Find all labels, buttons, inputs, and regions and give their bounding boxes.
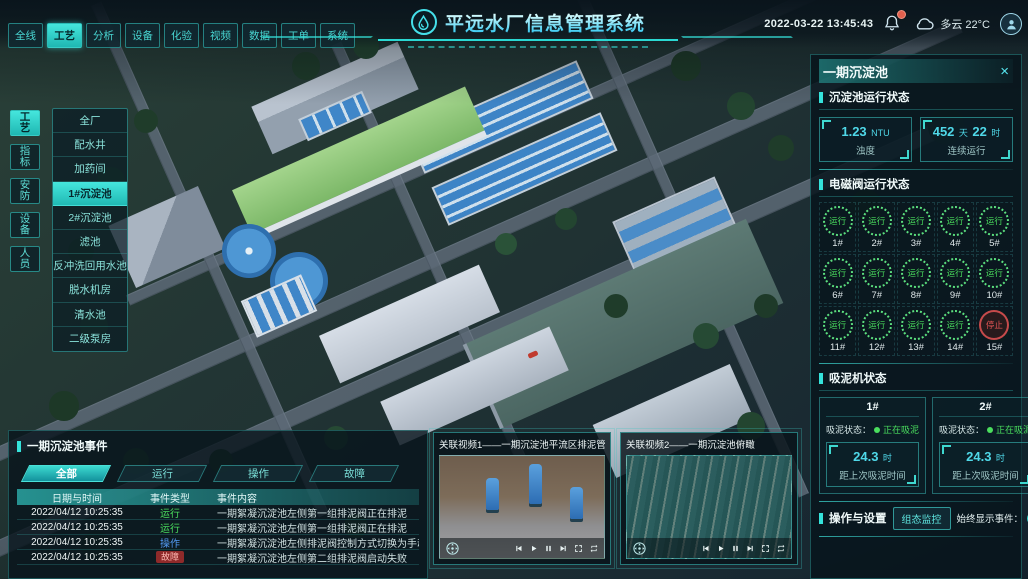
scraper-status-row: 吸泥状态： 正在吸泥 (826, 423, 919, 436)
prev-icon[interactable] (701, 544, 710, 553)
uptime-days-unit: 天 (959, 128, 968, 138)
events-panel-title: 一期沉淀池事件 (17, 436, 419, 456)
valve-status: 运行 4# (937, 202, 974, 252)
valve-status-label: 运行 (829, 319, 846, 331)
valve-status-label: 运行 (868, 267, 885, 279)
loop-icon[interactable] (589, 544, 599, 553)
valve-status: 运行 9# (937, 254, 974, 304)
always-show-events-toggle-wrap: 始终显示事件： (957, 511, 1028, 525)
valve-indicator-icon: 运行 (940, 258, 970, 288)
scraper-status-row: 吸泥状态： 正在吸泥 (939, 423, 1028, 436)
status-dot-icon (987, 427, 993, 433)
event-content: 一期絮凝沉淀池左侧第二组排泥阀启动失败 (203, 550, 419, 565)
valve-id: 9# (950, 290, 961, 301)
valve-indicator-icon: 运行 (862, 206, 892, 236)
uptime-label: 连续运行 (923, 143, 1010, 157)
pump-equipment (486, 478, 499, 510)
scraper-status-value: 正在吸泥 (996, 423, 1028, 436)
turbidity-label: 浊度 (822, 143, 909, 157)
event-type: 运行 (137, 520, 203, 535)
prev-icon[interactable] (514, 544, 523, 553)
video-title: 关联视频2——一期沉淀池俯瞰 (626, 437, 792, 451)
valve-status-label: 运行 (907, 319, 924, 331)
event-row[interactable]: 2022/04/12 10:25:35 操作 一期絮凝沉淀池左侧排泥阀控制方式切… (17, 535, 419, 550)
loop-icon[interactable] (776, 544, 786, 553)
valve-status-label: 运行 (947, 267, 964, 279)
valve-id: 5# (989, 238, 1000, 249)
detail-panel: 一期沉淀池 × 沉淀池运行状态 1.23 NTU 浊度 452 天 22 时 连… (810, 54, 1022, 579)
event-time: 2022/04/12 10:25:35 (17, 507, 137, 518)
valve-id: 13# (908, 342, 924, 353)
turbidity-unit: NTU (871, 128, 890, 138)
pump-equipment (529, 464, 542, 504)
nav-tab[interactable]: 分析 (86, 23, 121, 48)
uptime-days: 452 (933, 124, 955, 139)
nav-tab[interactable]: 化验 (164, 23, 199, 48)
detail-panel-header: 一期沉淀池 × (819, 59, 1013, 83)
valve-id: 14# (947, 342, 963, 353)
mud-scraper-cards: 1# 吸泥状态： 正在吸泥 24.3 时 距上次吸泥时间 2# (819, 397, 1013, 494)
valve-indicator-icon: 运行 (862, 310, 892, 340)
event-type: 故障 (156, 551, 184, 563)
events-panel: 一期沉淀池事件 全部 运行 操作 故障 日期与时间 事件类型 事件内容 2022… (8, 430, 428, 579)
event-filter-tab[interactable]: 全部 (21, 465, 111, 482)
valve-id: 7# (872, 290, 883, 301)
notification-bell-icon[interactable] (883, 13, 903, 35)
video-panel: 关联视频1——一期沉淀池平流区排泥管廊 (433, 432, 611, 565)
valve-id: 8# (911, 290, 922, 301)
valve-status: 运行 10# (976, 254, 1013, 304)
valve-status: 停止 15# (976, 306, 1013, 356)
sidebar-tab[interactable]: 设备 (10, 212, 40, 238)
ptz-control-icon[interactable] (445, 541, 460, 556)
submenu-item[interactable]: 加药间 (53, 157, 127, 181)
event-row[interactable]: 2022/04/12 10:25:35 故障 一期絮凝沉淀池左侧第二组排泥阀启动… (17, 550, 419, 565)
nav-tab[interactable]: 视频 (203, 23, 238, 48)
uptime-hours: 22 (972, 124, 986, 139)
scraper-time-unit: 时 (883, 453, 892, 463)
submenu-item[interactable]: 滤池 (53, 230, 127, 254)
valve-status-label: 运行 (868, 215, 885, 227)
uptime-hours-unit: 时 (991, 128, 1000, 138)
col-datetime: 日期与时间 (17, 490, 137, 505)
top-bar: 全线 工艺 分析 设备 化验 视频 数据 工单 系统 (0, 0, 1028, 48)
video-panel: 关联视频2——一期沉淀池俯瞰 (620, 432, 798, 565)
operations-row: 操作与设置 组态监控 始终显示事件： (819, 504, 1013, 532)
valve-indicator-icon: 停止 (979, 310, 1009, 340)
nav-tab[interactable]: 工艺 (47, 23, 82, 48)
valve-indicator-icon: 运行 (940, 310, 970, 340)
valve-status-label: 运行 (947, 319, 964, 331)
event-type: 操作 (137, 535, 203, 550)
section-pool-status-title: 沉淀池运行状态 (819, 83, 1013, 110)
valve-status: 运行 11# (819, 306, 856, 356)
nav-tab[interactable]: 全线 (8, 23, 43, 48)
event-filter-tab[interactable]: 操作 (213, 465, 303, 482)
scraper-time-label: 距上次吸泥时间 (829, 468, 916, 482)
turbidity-stat: 1.23 NTU 浊度 (819, 117, 912, 162)
scada-monitor-button[interactable]: 组态监控 (893, 507, 951, 530)
submenu-item[interactable]: 二级泵房 (53, 327, 127, 351)
pool-status-stats: 1.23 NTU 浊度 452 天 22 时 连续运行 (819, 117, 1013, 162)
valve-id: 6# (832, 290, 843, 301)
pump-equipment (570, 487, 583, 519)
scraper-status-value: 正在吸泥 (883, 423, 919, 436)
valve-status: 运行 14# (937, 306, 974, 356)
close-icon[interactable]: × (1000, 64, 1009, 79)
col-content: 事件内容 (203, 490, 419, 505)
process-submenu: 全厂 配水井 加药间 1#沉淀池 2#沉淀池 滤池 反冲洗回用水池 脱水机房 清… (52, 108, 128, 352)
video-control-bar (627, 538, 791, 558)
turbidity-value: 1.23 (841, 124, 866, 139)
scraper-status-label: 吸泥状态： (939, 423, 984, 436)
pause-icon[interactable] (731, 544, 740, 553)
event-type: 运行 (137, 505, 203, 520)
valve-id: 1# (832, 238, 843, 249)
valve-indicator-icon: 运行 (901, 206, 931, 236)
valve-grid: 运行 1# 运行 2# 运行 3# (819, 202, 1013, 356)
valve-id: 3# (911, 238, 922, 249)
valve-status: 运行 3# (897, 202, 934, 252)
scraper-time-stat: 24.3 时 距上次吸泥时间 (939, 442, 1028, 487)
user-avatar[interactable] (1000, 13, 1022, 35)
divider (819, 536, 1013, 537)
event-content: 一期絮凝沉淀池左侧第一组排泥阀正在排泥 (203, 520, 419, 535)
valve-status: 运行 2# (858, 202, 895, 252)
page-title: 平远水厂信息管理系统 (445, 9, 645, 36)
valve-status-label: 运行 (907, 267, 924, 279)
scraper-time-unit: 时 (996, 453, 1005, 463)
valve-status: 运行 5# (976, 202, 1013, 252)
sidebar-tab[interactable]: 人员 (10, 246, 40, 272)
water-drop-logo-icon (411, 9, 437, 35)
events-table: 日期与时间 事件类型 事件内容 2022/04/12 10:25:35 运行 一… (17, 489, 419, 565)
video-thumbnail[interactable] (439, 455, 605, 559)
valve-indicator-icon: 运行 (901, 258, 931, 288)
ptz-control-icon[interactable] (632, 541, 647, 556)
decor-line (261, 24, 385, 38)
video-title: 关联视频1——一期沉淀池平流区排泥管廊 (439, 437, 605, 451)
valve-status: 运行 6# (819, 254, 856, 304)
event-time: 2022/04/12 10:25:35 (17, 537, 137, 548)
valve-indicator-icon: 运行 (979, 206, 1009, 236)
dashboard: 全线 工艺 分析 设备 化验 视频 数据 工单 系统 (0, 0, 1028, 579)
status-dot-icon (874, 427, 880, 433)
valve-status-label: 运行 (829, 267, 846, 279)
valve-indicator-icon: 运行 (823, 258, 853, 288)
playback-controls (701, 544, 786, 553)
top-right-cluster: 2022-03-22 13:45:43 多云 22°C (764, 13, 1022, 35)
event-content: 一期絮凝沉淀池左侧第一组排泥阀正在排泥 (203, 505, 419, 520)
submenu-item[interactable]: 清水池 (53, 303, 127, 327)
valve-status: 运行 7# (858, 254, 895, 304)
playback-controls (514, 544, 599, 553)
video-thumbnail[interactable] (626, 455, 792, 559)
play-icon[interactable] (529, 544, 538, 553)
sidebar-tab[interactable]: 工艺 (10, 110, 40, 136)
weather: 多云 22°C (913, 16, 990, 32)
scraper-time-label: 距上次吸泥时间 (942, 468, 1028, 482)
title-frame: 平远水厂信息管理系统 (378, 5, 678, 41)
scraper-time-stat: 24.3 时 距上次吸泥时间 (826, 442, 919, 487)
divider (819, 501, 1013, 502)
next-icon[interactable] (559, 544, 568, 553)
valve-indicator-icon: 运行 (823, 206, 853, 236)
event-row[interactable]: 2022/04/12 10:25:35 运行 一期絮凝沉淀池左侧第一组排泥阀正在… (17, 505, 419, 520)
valve-status-label: 停止 (986, 319, 1003, 331)
weather-text: 多云 22°C (940, 16, 990, 32)
col-type: 事件类型 (137, 490, 203, 505)
mud-scraper-card: 2# 吸泥状态： 正在吸泥 24.3 时 距上次吸泥时间 (932, 397, 1028, 494)
next-icon[interactable] (746, 544, 755, 553)
scraper-id: 2# (939, 401, 1028, 417)
nav-tab[interactable]: 设备 (125, 23, 160, 48)
datetime: 2022-03-22 13:45:43 (764, 18, 873, 30)
fullscreen-icon[interactable] (761, 544, 770, 553)
event-row[interactable]: 2022/04/12 10:25:35 运行 一期絮凝沉淀池左侧第一组排泥阀正在… (17, 520, 419, 535)
alert-badge (897, 10, 906, 19)
valve-id: 15# (986, 342, 1002, 353)
submenu-item[interactable]: 脱水机房 (53, 278, 127, 302)
uptime-stat: 452 天 22 时 连续运行 (920, 117, 1013, 162)
valve-status: 运行 13# (897, 306, 934, 356)
mud-scraper-card: 1# 吸泥状态： 正在吸泥 24.3 时 距上次吸泥时间 (819, 397, 926, 494)
left-tab-bar: 工艺 指标 安防 设备 人员 (10, 110, 40, 272)
cloud-icon (913, 17, 935, 31)
submenu-item[interactable]: 全厂 (53, 109, 127, 133)
event-filter-tabs: 全部 运行 操作 故障 (25, 465, 415, 482)
submenu-item[interactable]: 2#沉淀池 (53, 206, 127, 230)
valve-indicator-icon: 运行 (823, 310, 853, 340)
valve-indicator-icon: 运行 (940, 206, 970, 236)
valve-status-label: 运行 (947, 215, 964, 227)
valve-status-label: 运行 (907, 215, 924, 227)
valve-id: 10# (986, 290, 1002, 301)
event-filter-tab[interactable]: 运行 (117, 465, 207, 482)
valve-status-label: 运行 (986, 215, 1003, 227)
valve-status: 运行 8# (897, 254, 934, 304)
events-table-header: 日期与时间 事件类型 事件内容 (17, 489, 419, 505)
linked-videos: 关联视频1——一期沉淀池平流区排泥管廊 (433, 432, 798, 565)
valve-id: 2# (872, 238, 883, 249)
event-filter-tab[interactable]: 故障 (309, 465, 399, 482)
valve-status-label: 运行 (829, 215, 846, 227)
submenu-item[interactable]: 配水井 (53, 133, 127, 157)
section-valves-title: 电磁阀运行状态 (819, 170, 1013, 197)
sidebar-tab[interactable]: 指标 (10, 144, 40, 170)
pause-icon[interactable] (544, 544, 553, 553)
event-content: 一期絮凝沉淀池左侧排泥阀控制方式切换为手动 (203, 535, 419, 550)
valve-indicator-icon: 运行 (901, 310, 931, 340)
fullscreen-icon[interactable] (574, 544, 583, 553)
submenu-item[interactable]: 1#沉淀池 (53, 182, 127, 206)
section-operations-title: 操作与设置 (819, 504, 887, 532)
valve-status-label: 运行 (868, 319, 885, 331)
valve-status-label: 运行 (986, 267, 1003, 279)
valve-id: 4# (950, 238, 961, 249)
toggle-label: 始终显示事件： (957, 511, 1024, 525)
sidebar-tab[interactable]: 安防 (10, 178, 40, 204)
valve-indicator-icon: 运行 (862, 258, 892, 288)
valve-status: 运行 12# (858, 306, 895, 356)
scraper-id: 1# (826, 401, 919, 417)
valve-indicator-icon: 运行 (979, 258, 1009, 288)
scraper-time-value: 24.3 (966, 449, 991, 464)
detail-panel-title: 一期沉淀池 (823, 62, 888, 81)
video-control-bar (440, 538, 604, 558)
scraper-status-label: 吸泥状态： (826, 423, 871, 436)
scraper-time-value: 24.3 (853, 449, 878, 464)
event-time: 2022/04/12 10:25:35 (17, 552, 137, 563)
event-time: 2022/04/12 10:25:35 (17, 522, 137, 533)
section-scrapers-title: 吸泥机状态 (819, 364, 1013, 391)
submenu-item[interactable]: 反冲洗回用水池 (53, 254, 127, 278)
play-icon[interactable] (716, 544, 725, 553)
valve-id: 12# (869, 342, 885, 353)
valve-status: 运行 1# (819, 202, 856, 252)
valve-id: 11# (830, 342, 845, 353)
